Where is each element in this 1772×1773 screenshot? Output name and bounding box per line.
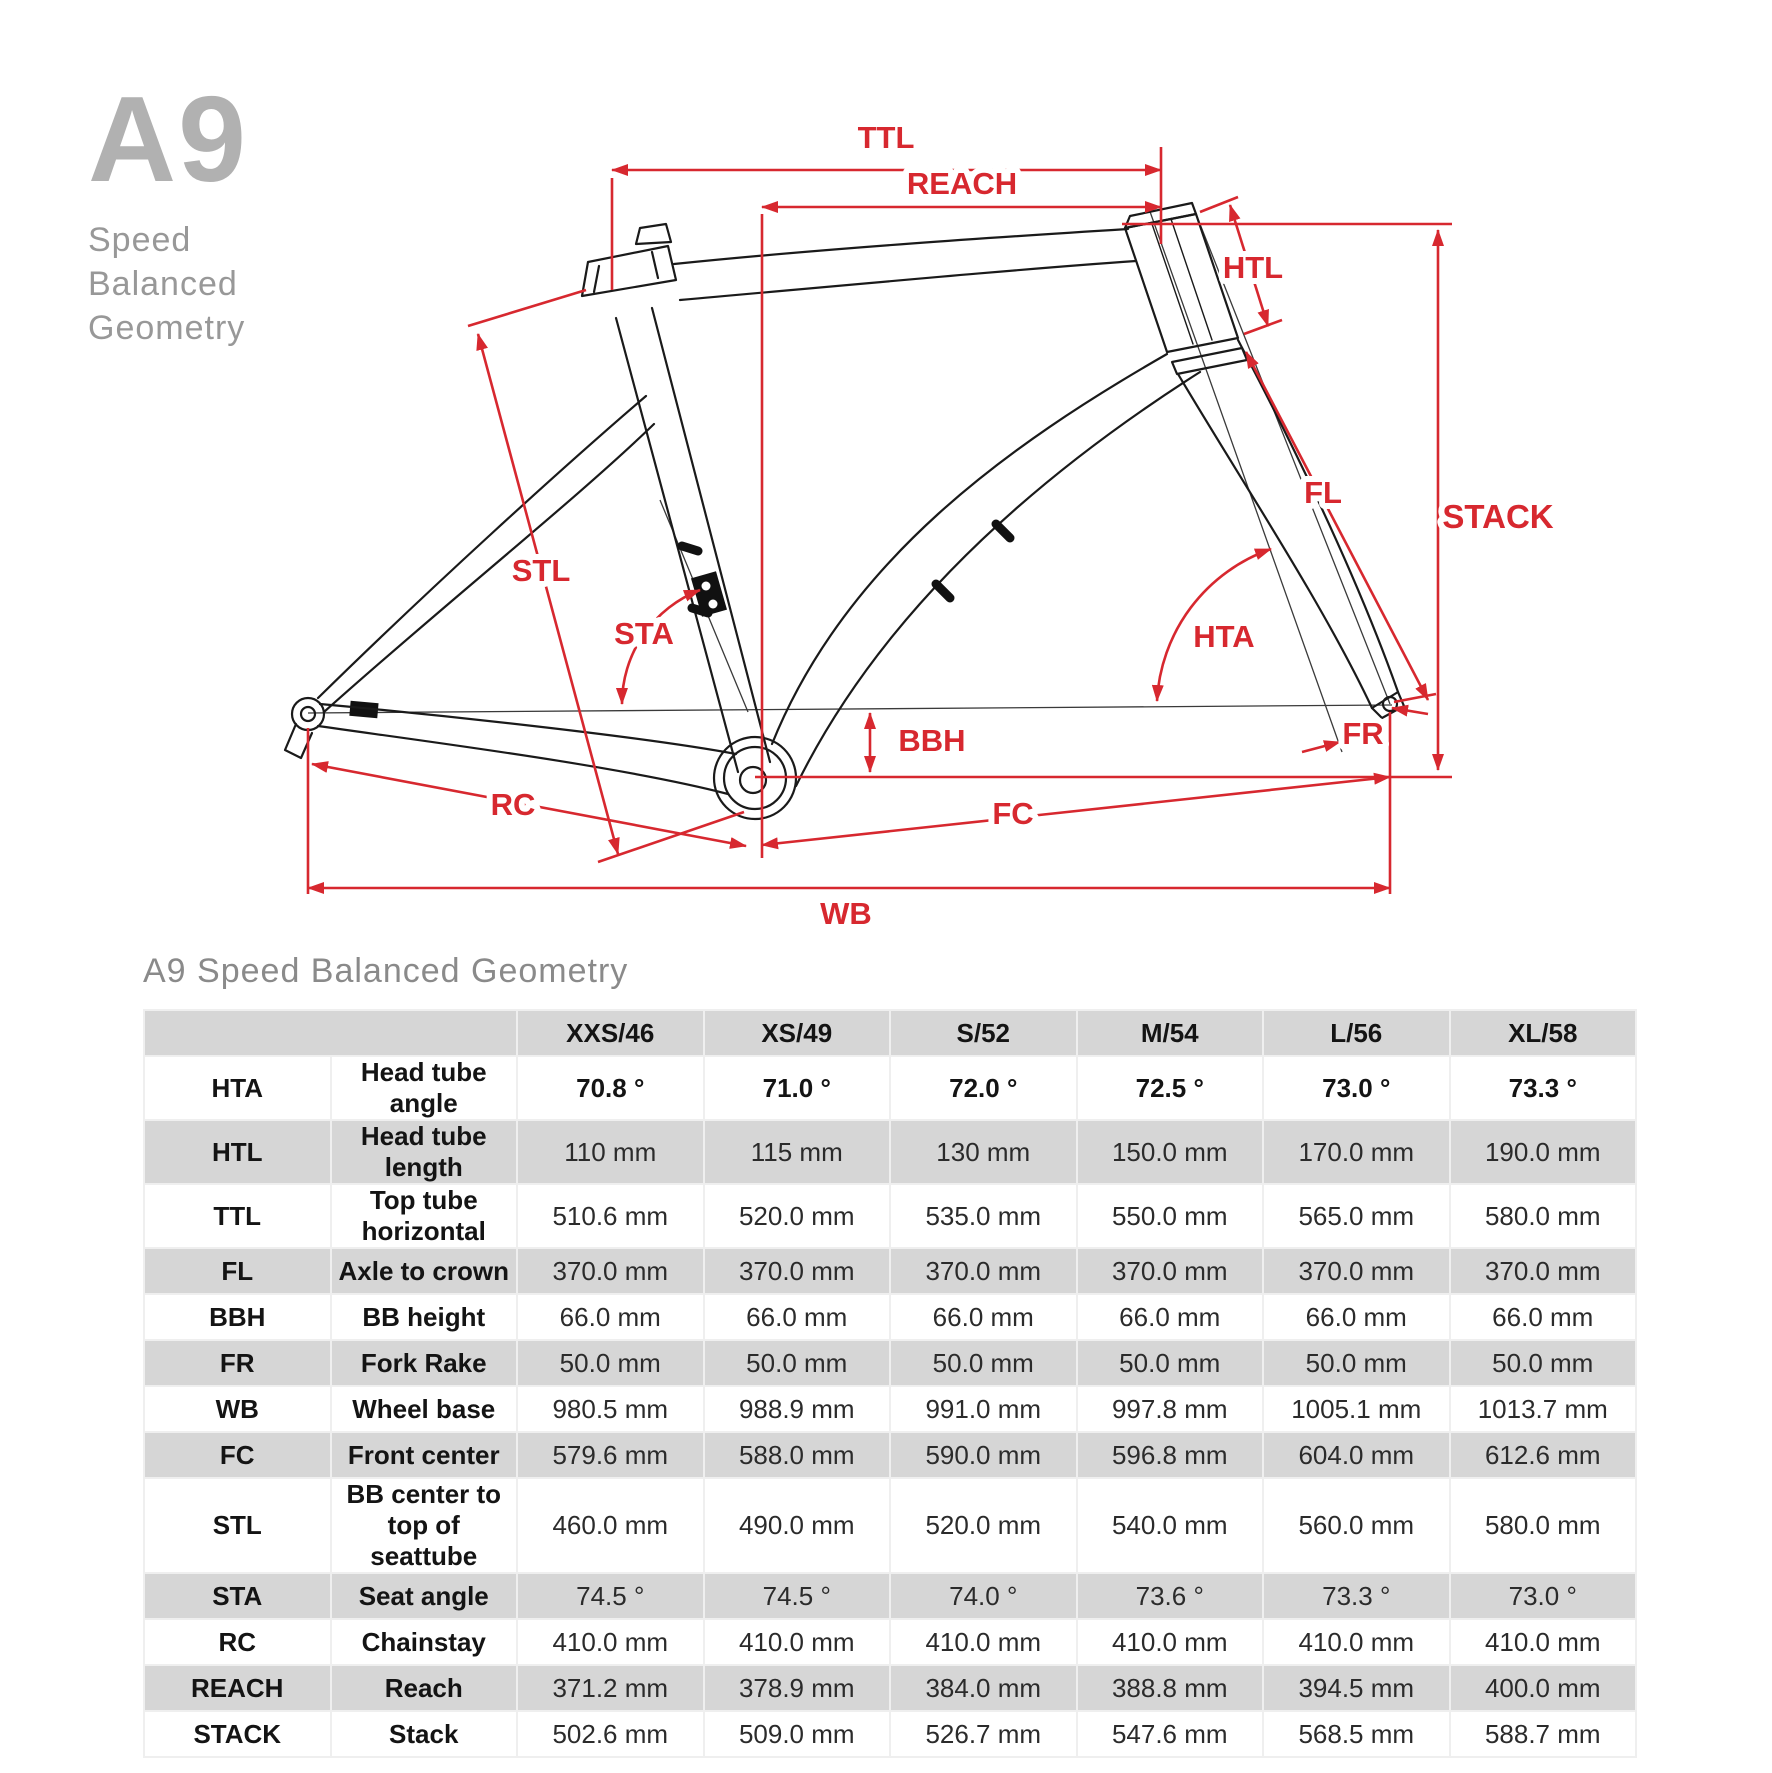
table-cell: 66.0 mm	[704, 1294, 891, 1340]
htl-label: HTL	[1223, 250, 1283, 285]
table-row: REACHReach371.2 mm378.9 mm384.0 mm388.8 …	[144, 1665, 1636, 1711]
table-row: STASeat angle74.5 °74.5 °74.0 °73.6 °73.…	[144, 1573, 1636, 1619]
table-cell: 410.0 mm	[890, 1619, 1077, 1665]
table-cell: 547.6 mm	[1077, 1711, 1264, 1757]
size-column-header: XXS/46	[517, 1010, 704, 1056]
size-column-header: S/52	[890, 1010, 1077, 1056]
table-cell: 991.0 mm	[890, 1386, 1077, 1432]
table-cell: 590.0 mm	[890, 1432, 1077, 1478]
rc-label: RC	[491, 787, 536, 822]
bbh-label: BBH	[898, 723, 965, 758]
table-row: STACKStack502.6 mm509.0 mm526.7 mm547.6 …	[144, 1711, 1636, 1757]
table-cell: 50.0 mm	[1263, 1340, 1450, 1386]
table-cell: 170.0 mm	[1263, 1120, 1450, 1184]
dimension-fl	[1246, 352, 1436, 702]
table-cell: 66.0 mm	[1263, 1294, 1450, 1340]
row-label: Head tube length	[331, 1120, 518, 1184]
table-cell: 70.8 °	[517, 1056, 704, 1120]
dimension-reach	[762, 207, 1161, 858]
table-cell: 370.0 mm	[517, 1248, 704, 1294]
table-cell: 579.6 mm	[517, 1432, 704, 1478]
row-label: BB center to top of seattube	[331, 1478, 518, 1573]
dimension-labels: TTL REACH HTL STACK FL STL STA HTA BBH F…	[491, 120, 1554, 931]
table-cell: 74.5 °	[704, 1573, 891, 1619]
row-code: WB	[144, 1386, 331, 1432]
table-cell: 526.7 mm	[890, 1711, 1077, 1757]
table-cell: 510.6 mm	[517, 1184, 704, 1248]
table-cell: 72.5 °	[1077, 1056, 1264, 1120]
geometry-section: A9 Speed Balanced Geometry XXS/46XS/49S/…	[143, 952, 1637, 1758]
table-cell: 588.7 mm	[1450, 1711, 1637, 1757]
table-cell: 72.0 °	[890, 1056, 1077, 1120]
table-cell: 370.0 mm	[1263, 1248, 1450, 1294]
frame-geometry-diagram: TTL REACH HTL STACK FL STL STA HTA BBH F…	[0, 0, 1772, 940]
table-cell: 580.0 mm	[1450, 1478, 1637, 1573]
table-cell: 74.5 °	[517, 1573, 704, 1619]
table-row: FLAxle to crown370.0 mm370.0 mm370.0 mm3…	[144, 1248, 1636, 1294]
row-code: STA	[144, 1573, 331, 1619]
row-label: Top tube horizontal	[331, 1184, 518, 1248]
table-cell: 568.5 mm	[1263, 1711, 1450, 1757]
table-cell: 980.5 mm	[517, 1386, 704, 1432]
table-row: RCChainstay410.0 mm410.0 mm410.0 mm410.0…	[144, 1619, 1636, 1665]
table-cell: 115 mm	[704, 1120, 891, 1184]
table-cell: 370.0 mm	[1450, 1248, 1637, 1294]
table-cell: 540.0 mm	[1077, 1478, 1264, 1573]
table-cell: 50.0 mm	[704, 1340, 891, 1386]
table-cell: 74.0 °	[890, 1573, 1077, 1619]
table-cell: 370.0 mm	[890, 1248, 1077, 1294]
fc-label: FC	[992, 796, 1033, 831]
table-row: FCFront center579.6 mm588.0 mm590.0 mm59…	[144, 1432, 1636, 1478]
row-code: TTL	[144, 1184, 331, 1248]
table-cell: 370.0 mm	[1077, 1248, 1264, 1294]
stack-label: STACK	[1442, 498, 1553, 535]
bike-frame-drawing	[285, 203, 1404, 819]
table-header: XXS/46XS/49S/52M/54L/56XL/58	[144, 1010, 1636, 1056]
row-code: STACK	[144, 1711, 331, 1757]
table-cell: 1013.7 mm	[1450, 1386, 1637, 1432]
row-label: Head tube angle	[331, 1056, 518, 1120]
table-cell: 110 mm	[517, 1120, 704, 1184]
dimension-fc	[762, 712, 1390, 894]
table-cell: 410.0 mm	[1263, 1619, 1450, 1665]
table-cell: 50.0 mm	[517, 1340, 704, 1386]
table-cell: 388.8 mm	[1077, 1665, 1264, 1711]
size-column-header: XS/49	[704, 1010, 891, 1056]
row-label: Stack	[331, 1711, 518, 1757]
table-cell: 130 mm	[890, 1120, 1077, 1184]
table-corner-cell	[144, 1010, 517, 1056]
hta-label: HTA	[1193, 619, 1254, 654]
ttl-label: TTL	[858, 120, 915, 155]
wb-label: WB	[820, 896, 872, 931]
reach-label: REACH	[907, 166, 1017, 201]
table-cell: 50.0 mm	[1077, 1340, 1264, 1386]
table-cell: 66.0 mm	[517, 1294, 704, 1340]
row-label: Seat angle	[331, 1573, 518, 1619]
table-cell: 66.0 mm	[1450, 1294, 1637, 1340]
row-label: Wheel base	[331, 1386, 518, 1432]
table-cell: 535.0 mm	[890, 1184, 1077, 1248]
table-row: BBHBB height66.0 mm66.0 mm66.0 mm66.0 mm…	[144, 1294, 1636, 1340]
table-cell: 71.0 °	[704, 1056, 891, 1120]
page: { "logo": { "title": "A9", "subtitle": […	[0, 0, 1772, 1773]
table-cell: 73.6 °	[1077, 1573, 1264, 1619]
row-code: RC	[144, 1619, 331, 1665]
table-cell: 520.0 mm	[704, 1184, 891, 1248]
table-cell: 371.2 mm	[517, 1665, 704, 1711]
table-cell: 410.0 mm	[517, 1619, 704, 1665]
row-label: Axle to crown	[331, 1248, 518, 1294]
fl-label: FL	[1304, 475, 1342, 510]
row-label: Chainstay	[331, 1619, 518, 1665]
row-label: Reach	[331, 1665, 518, 1711]
table-cell: 400.0 mm	[1450, 1665, 1637, 1711]
table-cell: 580.0 mm	[1450, 1184, 1637, 1248]
table-cell: 73.0 °	[1450, 1573, 1637, 1619]
table-cell: 190.0 mm	[1450, 1120, 1637, 1184]
table-cell: 997.8 mm	[1077, 1386, 1264, 1432]
table-cell: 988.9 mm	[704, 1386, 891, 1432]
table-cell: 73.0 °	[1263, 1056, 1450, 1120]
table-cell: 588.0 mm	[704, 1432, 891, 1478]
table-cell: 565.0 mm	[1263, 1184, 1450, 1248]
row-label: Fork Rake	[331, 1340, 518, 1386]
table-row: WBWheel base980.5 mm988.9 mm991.0 mm997.…	[144, 1386, 1636, 1432]
dimension-stack	[755, 224, 1452, 777]
table-cell: 73.3 °	[1263, 1573, 1450, 1619]
table-cell: 612.6 mm	[1450, 1432, 1637, 1478]
table-title: A9 Speed Balanced Geometry	[143, 952, 1637, 991]
geometry-table: XXS/46XS/49S/52M/54L/56XL/58 HTAHead tub…	[143, 1009, 1637, 1758]
table-cell: 604.0 mm	[1263, 1432, 1450, 1478]
row-label: BB height	[331, 1294, 518, 1340]
table-cell: 394.5 mm	[1263, 1665, 1450, 1711]
table-cell: 596.8 mm	[1077, 1432, 1264, 1478]
table-cell: 490.0 mm	[704, 1478, 891, 1573]
sta-label: STA	[614, 616, 674, 651]
table-cell: 560.0 mm	[1263, 1478, 1450, 1573]
reference-lines	[308, 206, 1392, 752]
table-cell: 150.0 mm	[1077, 1120, 1264, 1184]
table-cell: 509.0 mm	[704, 1711, 891, 1757]
row-code: REACH	[144, 1665, 331, 1711]
table-row: STLBB center to top of seattube460.0 mm4…	[144, 1478, 1636, 1573]
table-row: HTLHead tube length110 mm115 mm130 mm150…	[144, 1120, 1636, 1184]
table-cell: 50.0 mm	[1450, 1340, 1637, 1386]
row-code: FL	[144, 1248, 331, 1294]
table-row: FRFork Rake50.0 mm50.0 mm50.0 mm50.0 mm5…	[144, 1340, 1636, 1386]
size-column-header: L/56	[1263, 1010, 1450, 1056]
table-cell: 520.0 mm	[890, 1478, 1077, 1573]
table-cell: 1005.1 mm	[1263, 1386, 1450, 1432]
fr-label: FR	[1342, 716, 1383, 751]
table-header-row: XXS/46XS/49S/52M/54L/56XL/58	[144, 1010, 1636, 1056]
table-row: TTLTop tube horizontal510.6 mm520.0 mm53…	[144, 1184, 1636, 1248]
table-cell: 410.0 mm	[1077, 1619, 1264, 1665]
table-cell: 460.0 mm	[517, 1478, 704, 1573]
table-cell: 73.3 °	[1450, 1056, 1637, 1120]
table-cell: 66.0 mm	[890, 1294, 1077, 1340]
table-body: HTAHead tube angle70.8 °71.0 °72.0 °72.5…	[144, 1056, 1636, 1757]
table-cell: 410.0 mm	[1450, 1619, 1637, 1665]
table-cell: 502.6 mm	[517, 1711, 704, 1757]
stl-label: STL	[512, 553, 571, 588]
row-code: HTA	[144, 1056, 331, 1120]
row-code: FC	[144, 1432, 331, 1478]
table-cell: 550.0 mm	[1077, 1184, 1264, 1248]
table-cell: 378.9 mm	[704, 1665, 891, 1711]
row-label: Front center	[331, 1432, 518, 1478]
size-column-header: XL/58	[1450, 1010, 1637, 1056]
size-column-header: M/54	[1077, 1010, 1264, 1056]
table-cell: 50.0 mm	[890, 1340, 1077, 1386]
table-row: HTAHead tube angle70.8 °71.0 °72.0 °72.5…	[144, 1056, 1636, 1120]
table-cell: 384.0 mm	[890, 1665, 1077, 1711]
table-cell: 370.0 mm	[704, 1248, 891, 1294]
row-code: STL	[144, 1478, 331, 1573]
row-code: HTL	[144, 1120, 331, 1184]
table-cell: 66.0 mm	[1077, 1294, 1264, 1340]
table-cell: 410.0 mm	[704, 1619, 891, 1665]
dimension-ttl	[612, 147, 1161, 290]
row-code: FR	[144, 1340, 331, 1386]
row-code: BBH	[144, 1294, 331, 1340]
